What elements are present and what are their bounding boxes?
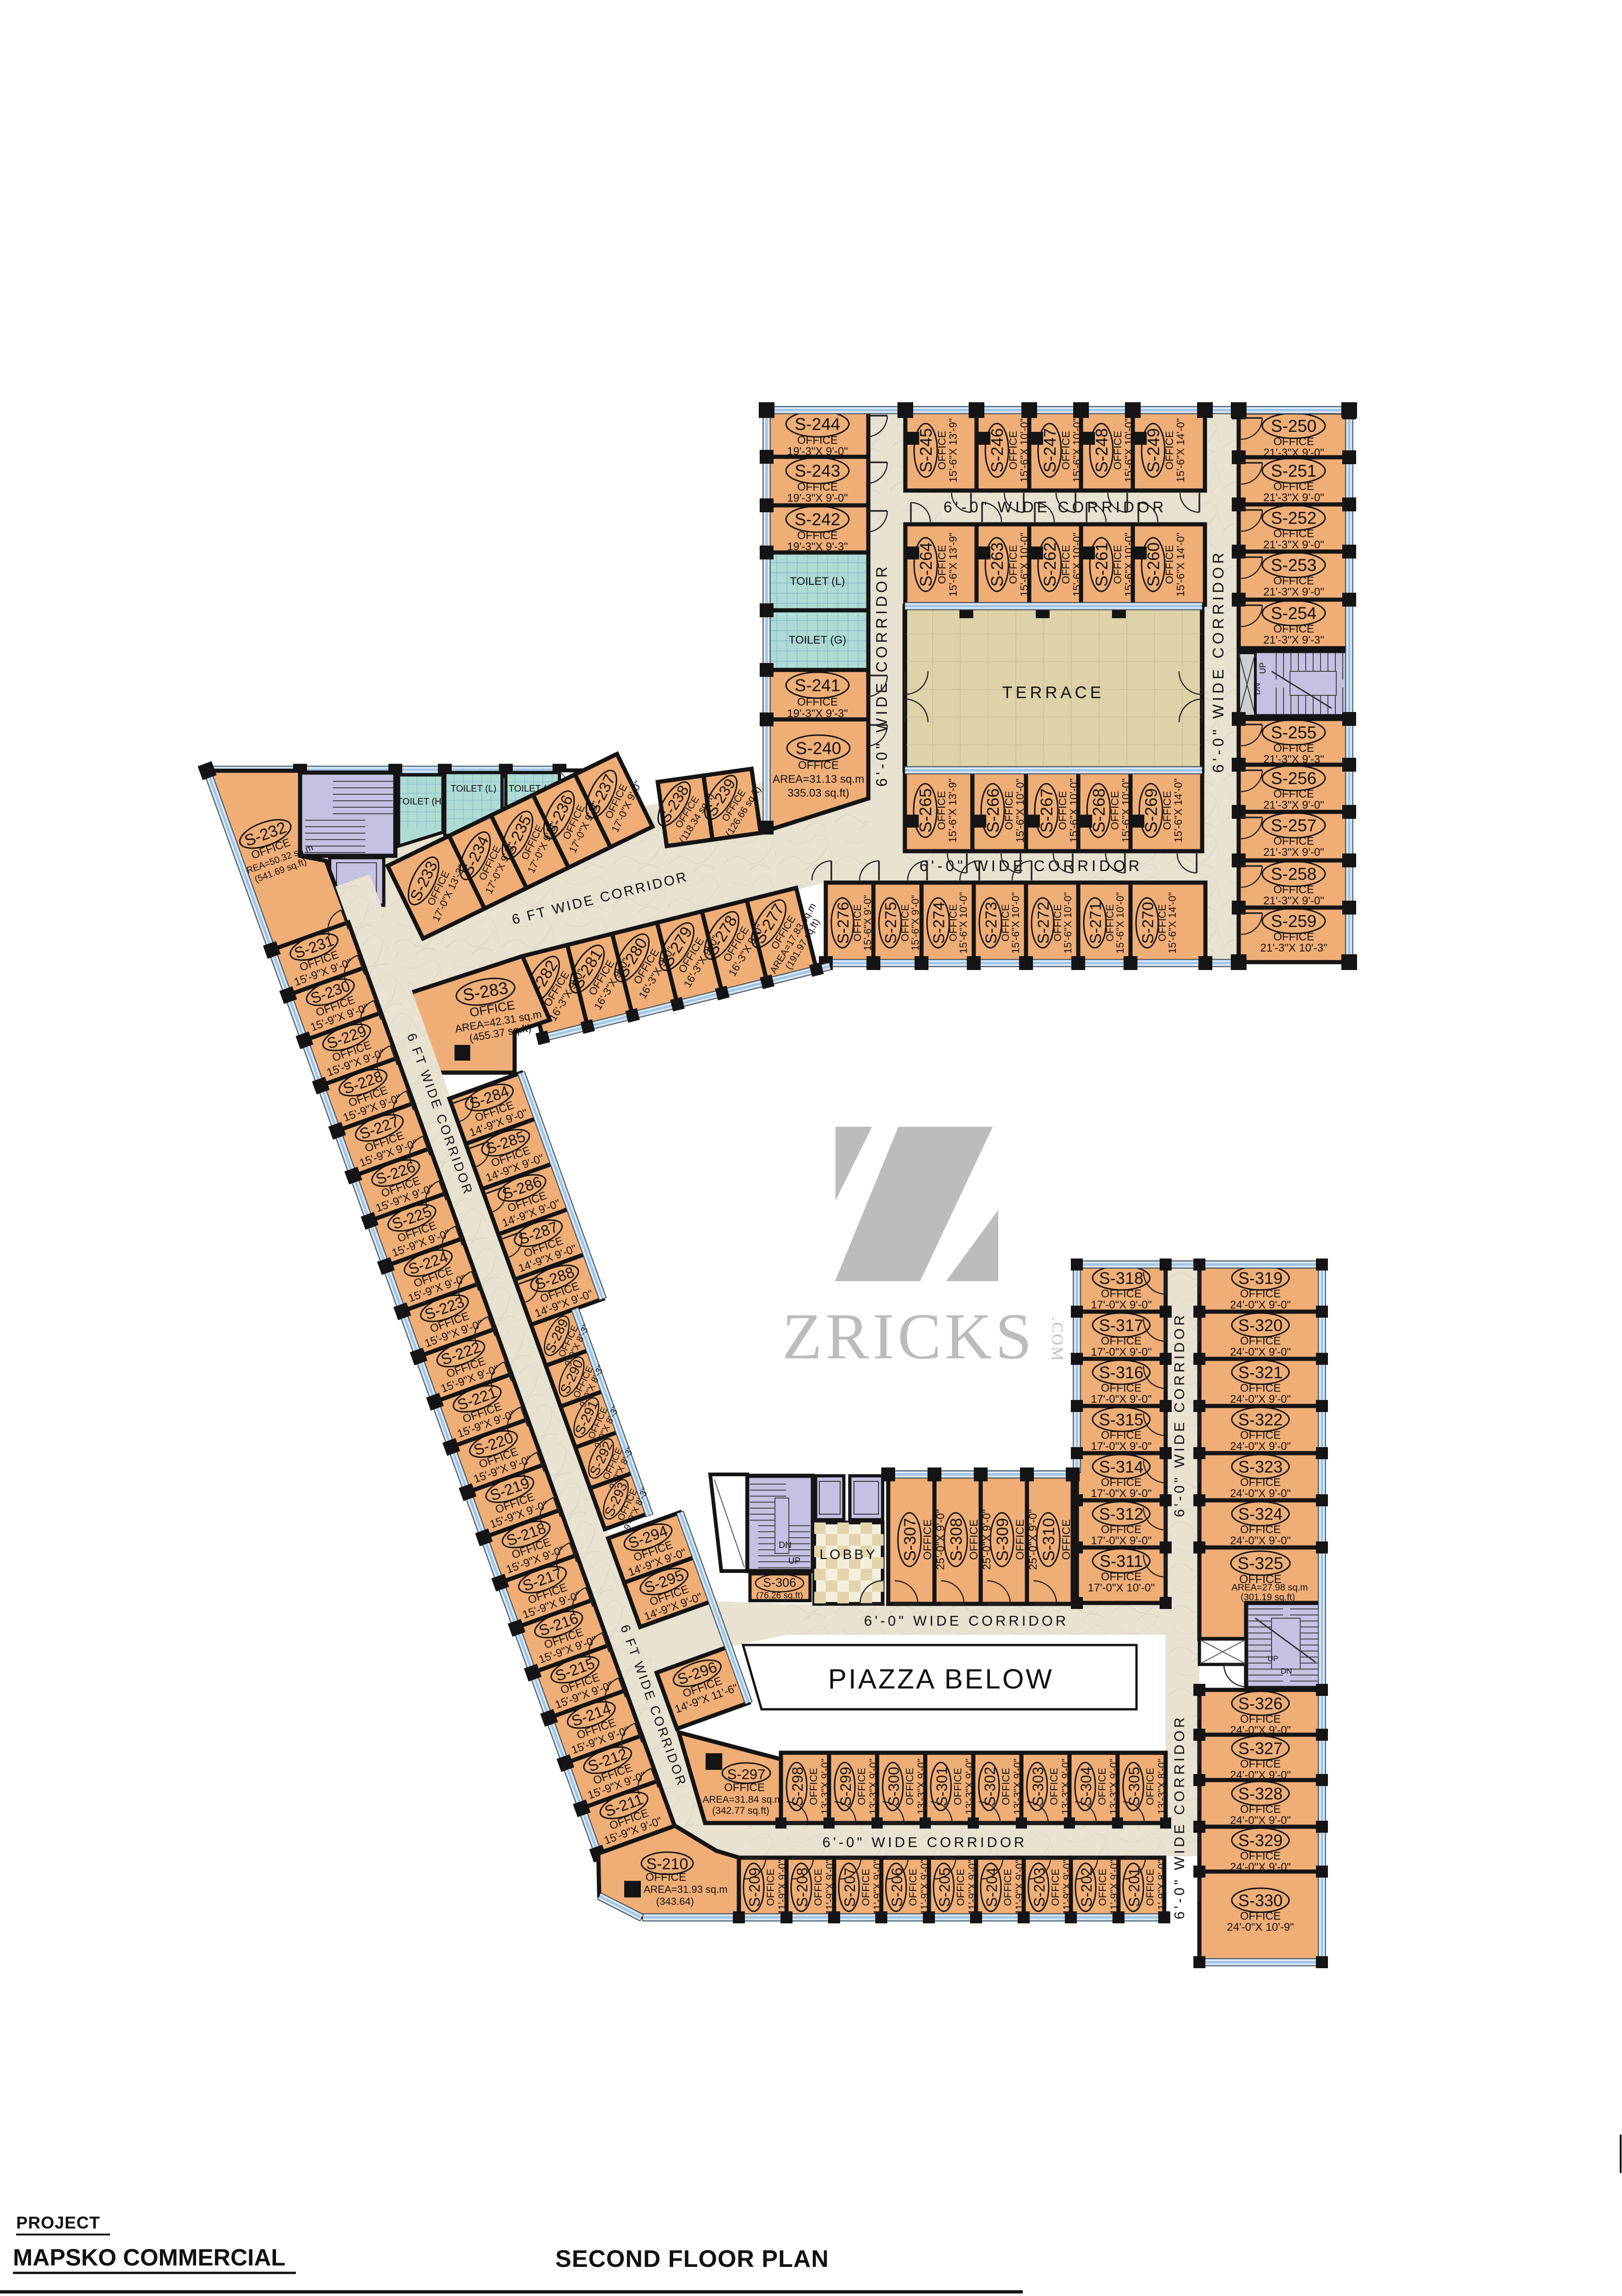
svg-text:OFFICE: OFFICE (808, 1768, 819, 1805)
svg-text:S-253: S-253 (1271, 556, 1317, 575)
svg-text:S-328: S-328 (1238, 1784, 1283, 1803)
svg-text:PIAZZA BELOW: PIAZZA BELOW (828, 1664, 1054, 1694)
svg-text:S-267: S-267 (1037, 788, 1056, 833)
svg-text:OFFICE: OFFICE (1240, 1476, 1281, 1489)
svg-text:TERRACE: TERRACE (1002, 683, 1104, 702)
svg-text:15'-6"X 14'-0": 15'-6"X 14'-0" (1174, 418, 1186, 483)
svg-text:15'-6"X 9'-0": 15'-6"X 9'-0" (862, 895, 873, 951)
svg-text:OFFICE: OFFICE (1240, 1382, 1281, 1394)
svg-text:TOILET (L): TOILET (L) (790, 575, 845, 588)
svg-text:OFFICE: OFFICE (907, 1869, 919, 1906)
svg-text:OFFICE: OFFICE (936, 431, 948, 470)
svg-text:OFFICE: OFFICE (1273, 480, 1314, 493)
svg-text:S-258: S-258 (1271, 865, 1317, 884)
svg-text:S-256: S-256 (1271, 769, 1317, 788)
svg-text:OFFICE: OFFICE (797, 529, 838, 542)
svg-text:OFFICE: OFFICE (1000, 1768, 1012, 1805)
svg-text:(343.64): (343.64) (656, 1896, 694, 1907)
svg-text:MAPSKO COMMERCIAL: MAPSKO COMMERCIAL (13, 2244, 285, 2271)
svg-text:S-248: S-248 (1092, 428, 1111, 473)
svg-text:OFFICE: OFFICE (1240, 1910, 1281, 1922)
svg-text:15'-6"X 14'-0": 15'-6"X 14'-0" (1172, 779, 1184, 843)
svg-text:OFFICE: OFFICE (1273, 884, 1314, 896)
svg-text:19'-3"X 9'-3": 19'-3"X 9'-3" (787, 707, 848, 720)
svg-text:S-322: S-322 (1238, 1410, 1283, 1429)
svg-text:6'-0" WIDE CORRIDOR: 6'-0" WIDE CORRIDOR (1171, 1313, 1187, 1517)
svg-text:S-299: S-299 (837, 1767, 854, 1806)
svg-text:15'-6"X 13'-9": 15'-6"X 13'-9" (947, 533, 959, 597)
svg-text:OFFICE: OFFICE (1240, 1713, 1281, 1725)
svg-text:UP: UP (788, 1556, 800, 1566)
svg-text:OFFICE: OFFICE (1240, 1335, 1281, 1347)
svg-text:OFFICE: OFFICE (922, 1519, 934, 1560)
svg-text:OFFICE: OFFICE (1144, 1768, 1156, 1805)
svg-text:11'-9"X 9'-0": 11'-9"X 9'-0" (1014, 1860, 1025, 1915)
svg-text:S-310: S-310 (1040, 1518, 1058, 1561)
svg-text:OFFICE: OFFICE (935, 791, 947, 830)
svg-text:11'-9"X 9'-0": 11'-9"X 9'-0" (1061, 1860, 1073, 1915)
svg-text:15'-6"X 14'-0": 15'-6"X 14'-0" (1174, 533, 1186, 597)
svg-text:25'-0"X 9'-0": 25'-0"X 9'-0" (981, 1509, 993, 1570)
svg-text:24'-0"X 9'-0": 24'-0"X 9'-0" (1230, 1393, 1291, 1406)
svg-text:S-265: S-265 (916, 788, 935, 833)
svg-text:OFFICE: OFFICE (1240, 1803, 1281, 1816)
svg-text:S-274: S-274 (930, 902, 948, 944)
svg-text:OFFICE: OFFICE (904, 1768, 915, 1805)
svg-text:S-250: S-250 (1271, 417, 1317, 436)
svg-text:TOILET (L): TOILET (L) (450, 784, 496, 794)
svg-text:S-309: S-309 (994, 1518, 1012, 1561)
svg-text:OFFICE: OFFICE (1161, 791, 1173, 830)
svg-text:24'-0"X 9'-0": 24'-0"X 9'-0" (1230, 1487, 1291, 1500)
svg-text:13'-3"X 9'-0": 13'-3"X 9'-0" (1108, 1759, 1119, 1815)
svg-text:OFFICE: OFFICE (936, 545, 948, 584)
svg-text:S-326: S-326 (1238, 1694, 1283, 1713)
svg-text:S-302: S-302 (982, 1767, 998, 1806)
svg-text:TOILET (H): TOILET (H) (397, 797, 445, 807)
svg-text:24'-0"X 9'-0": 24'-0"X 9'-0" (1230, 1769, 1291, 1781)
svg-text:17'-0"X 9'-0": 17'-0"X 9'-0" (1091, 1535, 1152, 1547)
svg-text:S-327: S-327 (1238, 1739, 1283, 1758)
svg-text:LOBBY: LOBBY (819, 1547, 877, 1562)
svg-text:S-271: S-271 (1087, 902, 1105, 944)
svg-text:S-298: S-298 (789, 1767, 806, 1806)
svg-text:S-245: S-245 (916, 428, 935, 473)
svg-text:15'-6"X 10'-0": 15'-6"X 10'-0" (1068, 779, 1080, 843)
svg-text:OFFICE: OFFICE (797, 696, 838, 708)
svg-text:OFFICE: OFFICE (1240, 1288, 1281, 1300)
svg-text:S-261: S-261 (1092, 542, 1111, 587)
svg-text:S-208: S-208 (794, 1867, 811, 1907)
svg-text:S-306: S-306 (763, 1576, 796, 1590)
svg-text:15'-6"X 10'-0": 15'-6"X 10'-0" (1062, 892, 1074, 954)
svg-text:OFFICE: OFFICE (955, 1869, 966, 1906)
svg-text:OFFICE: OFFICE (1163, 545, 1175, 584)
svg-text:17'-0"X 9'-0": 17'-0"X 9'-0" (1091, 1440, 1152, 1453)
svg-text:S-209: S-209 (746, 1867, 763, 1907)
svg-text:OFFICE: OFFICE (1014, 1519, 1026, 1560)
svg-text:(342.77 sq.ft): (342.77 sq.ft) (712, 1805, 769, 1816)
svg-text:OFFICE: OFFICE (1097, 1869, 1108, 1906)
svg-text:S-207: S-207 (842, 1867, 858, 1907)
svg-text:OFFICE: OFFICE (1273, 528, 1314, 540)
svg-text:15'-6"X 10'-0": 15'-6"X 10'-0" (1114, 892, 1126, 954)
svg-text:15'-6"X 13'-9": 15'-6"X 13'-9" (946, 779, 958, 843)
svg-text:21'-3"X 9'-3": 21'-3"X 9'-3" (1263, 753, 1324, 766)
svg-text:S-314: S-314 (1099, 1457, 1143, 1476)
svg-text:UP: UP (1258, 662, 1267, 674)
svg-text:13'-3"X 9'-0": 13'-3"X 9'-0" (867, 1759, 879, 1815)
svg-text:S-311: S-311 (1100, 1552, 1143, 1571)
svg-text:S-301: S-301 (934, 1767, 950, 1806)
svg-text:S-323: S-323 (1238, 1457, 1283, 1476)
svg-text:15'-6"X 10'-0": 15'-6"X 10'-0" (1071, 418, 1083, 483)
svg-text:24'-0"X 9'-0": 24'-0"X 9'-0" (1230, 1299, 1291, 1311)
svg-text:OFFICE: OFFICE (1048, 1768, 1060, 1805)
svg-text:24'-0"X 9'-0": 24'-0"X 9'-0" (1230, 1346, 1291, 1358)
svg-text:S-201: S-201 (1126, 1867, 1143, 1907)
svg-text:S-204: S-204 (983, 1867, 1000, 1907)
svg-text:AREA=31.93 sq.m: AREA=31.93 sq.m (644, 1884, 728, 1895)
svg-text:OFFICE: OFFICE (1240, 1523, 1281, 1536)
svg-text:17'-0"X 9'-0": 17'-0"X 9'-0" (1091, 1487, 1152, 1500)
svg-text:OFFICE: OFFICE (1007, 545, 1019, 584)
svg-text:17'-0"X 9'-0": 17'-0"X 9'-0" (1091, 1299, 1152, 1311)
svg-text:21'-3"X 9'-0": 21'-3"X 9'-0" (1263, 491, 1324, 504)
svg-text:S-307: S-307 (901, 1518, 919, 1561)
svg-text:S-320: S-320 (1238, 1316, 1283, 1335)
svg-text:OFFICE: OFFICE (1112, 431, 1124, 470)
svg-text:S-263: S-263 (988, 542, 1007, 587)
svg-text:S-319: S-319 (1238, 1269, 1283, 1288)
svg-text:OFFICE: OFFICE (952, 1768, 964, 1805)
svg-text:24'-0"X 9'-0": 24'-0"X 9'-0" (1230, 1724, 1291, 1737)
svg-text:AREA=31.84 sq.m: AREA=31.84 sq.m (702, 1794, 782, 1805)
svg-text:21'-3"X 9'-0": 21'-3"X 9'-0" (1263, 799, 1324, 811)
svg-text:S-241: S-241 (795, 676, 841, 695)
svg-text:S-304: S-304 (1078, 1767, 1094, 1806)
svg-text:OFFICE: OFFICE (968, 1519, 980, 1560)
svg-text:S-269: S-269 (1142, 788, 1161, 833)
svg-text:S-249: S-249 (1144, 428, 1163, 473)
svg-text:OFFICE: OFFICE (1101, 1476, 1142, 1489)
svg-text:.COM: .COM (1049, 1317, 1066, 1362)
svg-text:24'-0"X 9'-0": 24'-0"X 9'-0" (1230, 1814, 1291, 1827)
svg-text:OFFICE: OFFICE (765, 1869, 776, 1906)
svg-text:OFFICE: OFFICE (812, 1869, 824, 1906)
svg-text:15'-6"X 10'-0": 15'-6"X 10'-0" (1014, 779, 1026, 843)
svg-text:21'-3"X 9'-3": 21'-3"X 9'-3" (1263, 634, 1324, 646)
svg-text:SECOND FLOOR PLAN: SECOND FLOOR PLAN (555, 2246, 829, 2272)
svg-text:15'-6"X 10'-0": 15'-6"X 10'-0" (1018, 533, 1030, 597)
svg-text:11'-9"X 9'-0": 11'-9"X 9'-0" (919, 1860, 930, 1915)
svg-text:S-246: S-246 (988, 428, 1007, 473)
svg-text:13'-3"X 9'-0": 13'-3"X 9'-0" (819, 1759, 831, 1815)
svg-text:OFFICE: OFFICE (1109, 791, 1121, 830)
svg-text:S-275: S-275 (882, 902, 900, 944)
svg-text:24'-0"X 10'-9": 24'-0"X 10'-9" (1227, 1921, 1294, 1934)
svg-text:OFFICE: OFFICE (1060, 431, 1072, 470)
svg-text:OFFICE: OFFICE (1101, 1429, 1142, 1442)
svg-text:21'-3"X 9'-0": 21'-3"X 9'-0" (1263, 586, 1324, 598)
svg-text:S-329: S-329 (1238, 1831, 1283, 1850)
svg-text:11'-9"X 9'-0": 11'-9"X 9'-0" (1108, 1860, 1120, 1915)
svg-text:OFFICE: OFFICE (1163, 431, 1175, 470)
svg-text:OFFICE: OFFICE (724, 1781, 765, 1794)
svg-text:S-247: S-247 (1040, 428, 1059, 473)
svg-text:OFFICE: OFFICE (1057, 791, 1069, 830)
svg-text:S-276: S-276 (835, 902, 852, 944)
svg-text:S-270: S-270 (1139, 902, 1157, 944)
svg-text:24'-0"X 9'-0": 24'-0"X 9'-0" (1230, 1535, 1291, 1547)
svg-text:S-317: S-317 (1099, 1316, 1143, 1335)
svg-text:S-308: S-308 (947, 1518, 965, 1561)
svg-text:6'-0" WIDE CORRIDOR: 6'-0" WIDE CORRIDOR (823, 1834, 1027, 1850)
svg-text:S-264: S-264 (916, 542, 935, 587)
svg-text:S-300: S-300 (885, 1767, 902, 1806)
svg-text:S-273: S-273 (983, 902, 1000, 944)
svg-text:OFFICE: OFFICE (797, 434, 838, 447)
svg-text:OFFICE: OFFICE (1273, 835, 1314, 847)
svg-text:21'-3"X 10'-3": 21'-3"X 10'-3" (1260, 942, 1327, 954)
svg-text:6'-0" WIDE CORRIDOR: 6'-0" WIDE CORRIDOR (944, 498, 1167, 516)
svg-text:OFFICE: OFFICE (860, 1869, 872, 1906)
svg-text:25'-0"X 9'-0": 25'-0"X 9'-0" (934, 1509, 947, 1570)
svg-text:21'-3"X 9'-0": 21'-3"X 9'-0" (1263, 895, 1324, 907)
svg-text:DN: DN (1281, 1667, 1292, 1676)
svg-text:17'-0"X 9'-0": 17'-0"X 9'-0" (1091, 1346, 1152, 1358)
svg-text:13'-3"X 9'-0": 13'-3"X 9'-0" (1012, 1759, 1023, 1815)
svg-text:OFFICE: OFFICE (856, 1768, 867, 1805)
svg-text:S-240: S-240 (796, 739, 842, 758)
svg-text:S-254: S-254 (1271, 604, 1317, 623)
svg-text:S-257: S-257 (1271, 816, 1317, 835)
svg-text:S-242: S-242 (795, 510, 841, 529)
svg-text:13'-3"X 9'-0": 13'-3"X 9'-0" (964, 1759, 975, 1815)
svg-text:15'-6"X 10'-0": 15'-6"X 10'-0" (1010, 892, 1021, 954)
svg-text:OFFICE: OFFICE (1096, 1768, 1108, 1805)
svg-text:OFFICE: OFFICE (1060, 1519, 1073, 1560)
svg-text:OFFICE: OFFICE (1273, 623, 1314, 635)
svg-text:S-266: S-266 (983, 788, 1002, 833)
svg-text:13'-3"X 9'-0": 13'-3"X 9'-0" (1060, 1759, 1071, 1815)
svg-text:S-262: S-262 (1040, 542, 1059, 587)
svg-text:15'-6"X 9'-0": 15'-6"X 9'-0" (909, 895, 921, 951)
svg-text:S-315: S-315 (1099, 1410, 1143, 1429)
svg-text:11'-9"X 9'-0": 11'-9"X 9'-0" (776, 1860, 788, 1915)
svg-text:OFFICE: OFFICE (1240, 1429, 1281, 1442)
svg-text:OFFICE: OFFICE (645, 1871, 686, 1884)
svg-text:17'-0"X 9'-0": 17'-0"X 9'-0" (1091, 1393, 1152, 1406)
svg-text:S-325: S-325 (1238, 1554, 1284, 1573)
svg-text:S-316: S-316 (1099, 1363, 1143, 1382)
svg-text:15'-6"X 10'-0": 15'-6"X 10'-0" (1120, 779, 1132, 843)
svg-text:ZRICKS: ZRICKS (782, 1300, 1035, 1373)
svg-text:S-243: S-243 (795, 461, 841, 480)
svg-text:S-203: S-203 (1031, 1867, 1048, 1907)
svg-text:S-312: S-312 (1099, 1504, 1143, 1523)
svg-text:15'-6"X 10'-0": 15'-6"X 10'-0" (1123, 533, 1135, 597)
svg-text:15'-6"X 14'-0": 15'-6"X 14'-0" (1167, 892, 1178, 954)
svg-text:11'-9"X 9'-0": 11'-9"X 9'-0" (872, 1860, 883, 1915)
svg-text:15'-6"X 10'-0": 15'-6"X 10'-0" (1123, 418, 1135, 483)
svg-text:13'-3"X 9'-0": 13'-3"X 9'-0" (915, 1759, 927, 1815)
svg-text:S-210: S-210 (646, 1855, 688, 1873)
svg-text:S-202: S-202 (1078, 1867, 1095, 1907)
svg-text:S-244: S-244 (795, 415, 841, 434)
svg-text:11'-9"X 8'-0": 11'-9"X 8'-0" (1156, 1860, 1167, 1915)
svg-text:6'-0" WIDE CORRIDOR: 6'-0" WIDE CORRIDOR (864, 1613, 1069, 1629)
svg-text:S-251: S-251 (1271, 461, 1317, 480)
svg-text:OFFICE: OFFICE (1101, 1288, 1142, 1300)
svg-text:OFFICE: OFFICE (1101, 1523, 1142, 1536)
svg-text:OFFICE: OFFICE (1060, 545, 1072, 584)
svg-text:S-259: S-259 (1271, 912, 1317, 931)
svg-text:S-321: S-321 (1238, 1363, 1283, 1382)
svg-text:19'-3"X 9'-0": 19'-3"X 9'-0" (787, 445, 848, 458)
svg-text:PROJECT: PROJECT (16, 2213, 100, 2232)
svg-text:OFFICE: OFFICE (1273, 788, 1314, 800)
svg-text:OFFICE: OFFICE (1101, 1335, 1142, 1347)
svg-text:S-255: S-255 (1271, 723, 1317, 742)
svg-text:S-206: S-206 (889, 1867, 905, 1907)
svg-text:OFFICE: OFFICE (1007, 431, 1019, 470)
svg-text:OFFICE: OFFICE (1144, 1869, 1156, 1906)
svg-text:21'-3"X 9'-0": 21'-3"X 9'-0" (1263, 447, 1324, 459)
svg-text:6'-0" WIDE CORRIDOR: 6'-0" WIDE CORRIDOR (1171, 1715, 1187, 1920)
svg-text:S-205: S-205 (936, 1867, 953, 1907)
svg-text:OFFICE: OFFICE (1101, 1382, 1142, 1394)
svg-text:15'-6"X 10'-0": 15'-6"X 10'-0" (1018, 418, 1030, 483)
svg-text:17'-0"X 10'-0": 17'-0"X 10'-0" (1088, 1582, 1155, 1594)
svg-text:(76.26 sq.ft): (76.26 sq.ft) (756, 1591, 803, 1601)
svg-text:S-260: S-260 (1144, 542, 1163, 587)
svg-text:S-297: S-297 (727, 1766, 766, 1782)
svg-text:21'-3"X 9'-0": 21'-3"X 9'-0" (1263, 846, 1324, 859)
svg-text:OFFICE: OFFICE (1003, 791, 1015, 830)
svg-text:OFFICE: OFFICE (1240, 1850, 1281, 1862)
svg-text:S-318: S-318 (1099, 1269, 1143, 1288)
svg-text:TOILET (G): TOILET (G) (789, 634, 846, 646)
svg-text:OFFICE: OFFICE (1273, 575, 1314, 587)
svg-text:6'-0" WIDE CORRIDOR: 6'-0" WIDE CORRIDOR (1210, 550, 1227, 773)
svg-text:OFFICE: OFFICE (1002, 1869, 1014, 1906)
svg-text:OFFICE: OFFICE (1050, 1869, 1061, 1906)
svg-text:OFFICE: OFFICE (798, 759, 839, 772)
svg-text:25'-0"X 9'-0": 25'-0"X 9'-0" (1027, 1509, 1039, 1570)
svg-text:OFFICE: OFFICE (1240, 1758, 1281, 1770)
svg-text:19'-3"X 9'-0": 19'-3"X 9'-0" (787, 492, 848, 504)
svg-text:S-330: S-330 (1238, 1891, 1283, 1910)
svg-text:OFFICE: OFFICE (1273, 931, 1314, 943)
svg-text:11'-9"X 9'-0": 11'-9"X 9'-0" (966, 1860, 978, 1915)
svg-text:S-252: S-252 (1271, 509, 1317, 528)
svg-text:OFFICE: OFFICE (1273, 436, 1314, 448)
svg-text:24'-0"X 9'-0": 24'-0"X 9'-0" (1230, 1861, 1291, 1873)
svg-text:AREA=27.98 sq.m: AREA=27.98 sq.m (1231, 1583, 1308, 1593)
svg-text:15'-6"X 13'-9": 15'-6"X 13'-9" (947, 418, 959, 483)
svg-text:AREA=31.13 sq.m: AREA=31.13 sq.m (773, 773, 864, 786)
svg-text:15'-6"X 10'-0": 15'-6"X 10'-0" (958, 892, 969, 954)
svg-text:OFFICE: OFFICE (1273, 742, 1314, 755)
svg-text:S-268: S-268 (1089, 788, 1108, 833)
svg-text:13'-3"X 8'-0": 13'-3"X 8'-0" (1156, 1759, 1167, 1815)
svg-text:S-303: S-303 (1030, 1767, 1046, 1806)
svg-text:UP: UP (1267, 1654, 1278, 1663)
svg-text:OFFICE: OFFICE (797, 481, 838, 493)
svg-text:S-324: S-324 (1238, 1504, 1283, 1523)
svg-text:24'-0"X 9'-0": 24'-0"X 9'-0" (1230, 1440, 1291, 1453)
svg-text:S-305: S-305 (1126, 1767, 1143, 1806)
svg-text:15'-6"X 10'-0": 15'-6"X 10'-0" (1071, 533, 1083, 597)
svg-text:DN: DN (779, 1541, 791, 1550)
svg-text:OFFICE: OFFICE (1101, 1571, 1142, 1583)
svg-text:335.03 sq.ft): 335.03 sq.ft) (787, 787, 849, 799)
svg-text:21'-3"X 9'-0": 21'-3"X 9'-0" (1263, 539, 1324, 551)
svg-text:S-272: S-272 (1035, 902, 1052, 944)
svg-text:11'-9"X 9'-0": 11'-9"X 9'-0" (824, 1860, 836, 1915)
svg-text:OFFICE: OFFICE (1112, 545, 1124, 584)
